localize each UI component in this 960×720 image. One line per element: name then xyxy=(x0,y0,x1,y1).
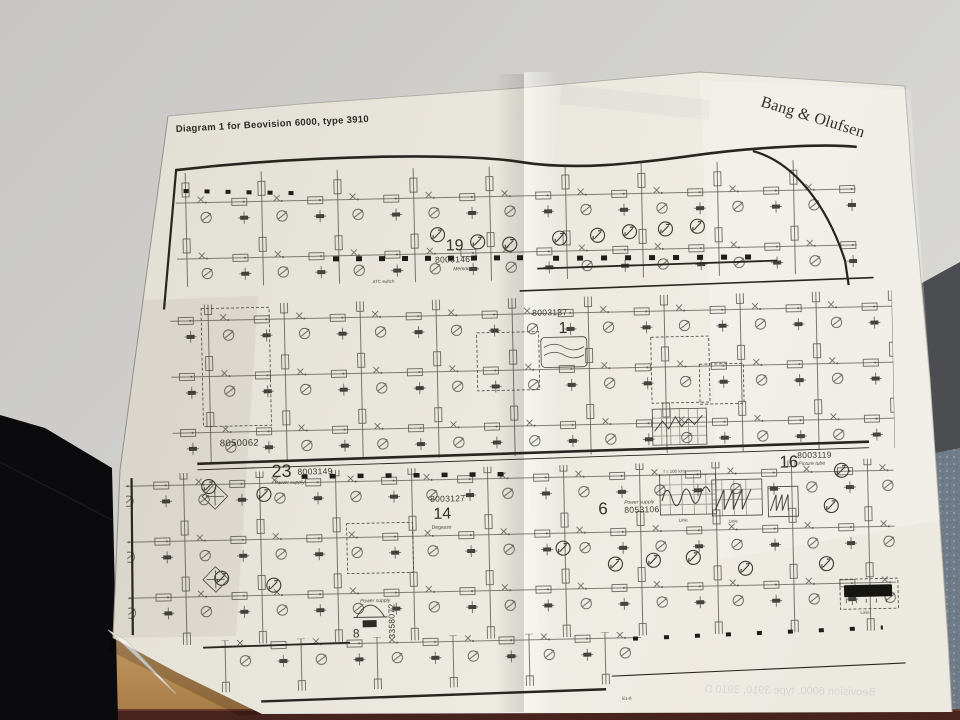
module-19-caption: Memory xyxy=(453,266,472,272)
scope-linie-1: Linie xyxy=(678,518,688,523)
module-1-part: 8003137 xyxy=(532,307,567,318)
module-23-part: 8003149 xyxy=(297,466,332,477)
scope-linie-2: Linie xyxy=(729,518,739,523)
module-6-number: 6 xyxy=(598,499,608,518)
module-8-part: 8003119 xyxy=(797,449,832,460)
scope-freq-label: f = 100 kHz xyxy=(663,469,685,474)
module-19-part: 8003146 xyxy=(435,254,470,265)
blacked-out-waveform xyxy=(844,584,892,597)
module-16-number: 8 xyxy=(353,626,360,640)
module-16-part: 3358072 xyxy=(386,603,397,638)
page-edge-label: E1-8 xyxy=(622,696,632,701)
module-14-part: 8003127 xyxy=(430,493,465,504)
module-8-caption: Picture tube xyxy=(798,461,825,468)
schematic-drawing: 19 8003146 Memory 8003137 1 8050062 23 8… xyxy=(119,144,906,711)
module-23-caption: Power supply xyxy=(275,480,306,487)
module-6-part: 8053106 xyxy=(624,504,659,515)
photo-of-service-manual: Diagram 1 for Beovision 6000, type 3910 … xyxy=(0,0,960,720)
module-8050062-part: 8050062 xyxy=(220,437,259,449)
module-23-number: 23 xyxy=(271,461,291,481)
module-14-caption: Degauss xyxy=(432,524,452,530)
module-14-number: 14 xyxy=(433,505,451,522)
module-16-caption: Power supply xyxy=(360,598,391,605)
module-19-number: 19 xyxy=(446,237,464,254)
atc-switch-label: ATC switch xyxy=(372,279,395,284)
photo-canvas: Diagram 1 for Beovision 6000, type 3910 … xyxy=(0,0,960,720)
module-8-number: 16 xyxy=(779,452,798,471)
scope-linie-3: Linie xyxy=(860,610,870,615)
module-1-number: 1 xyxy=(558,320,567,337)
